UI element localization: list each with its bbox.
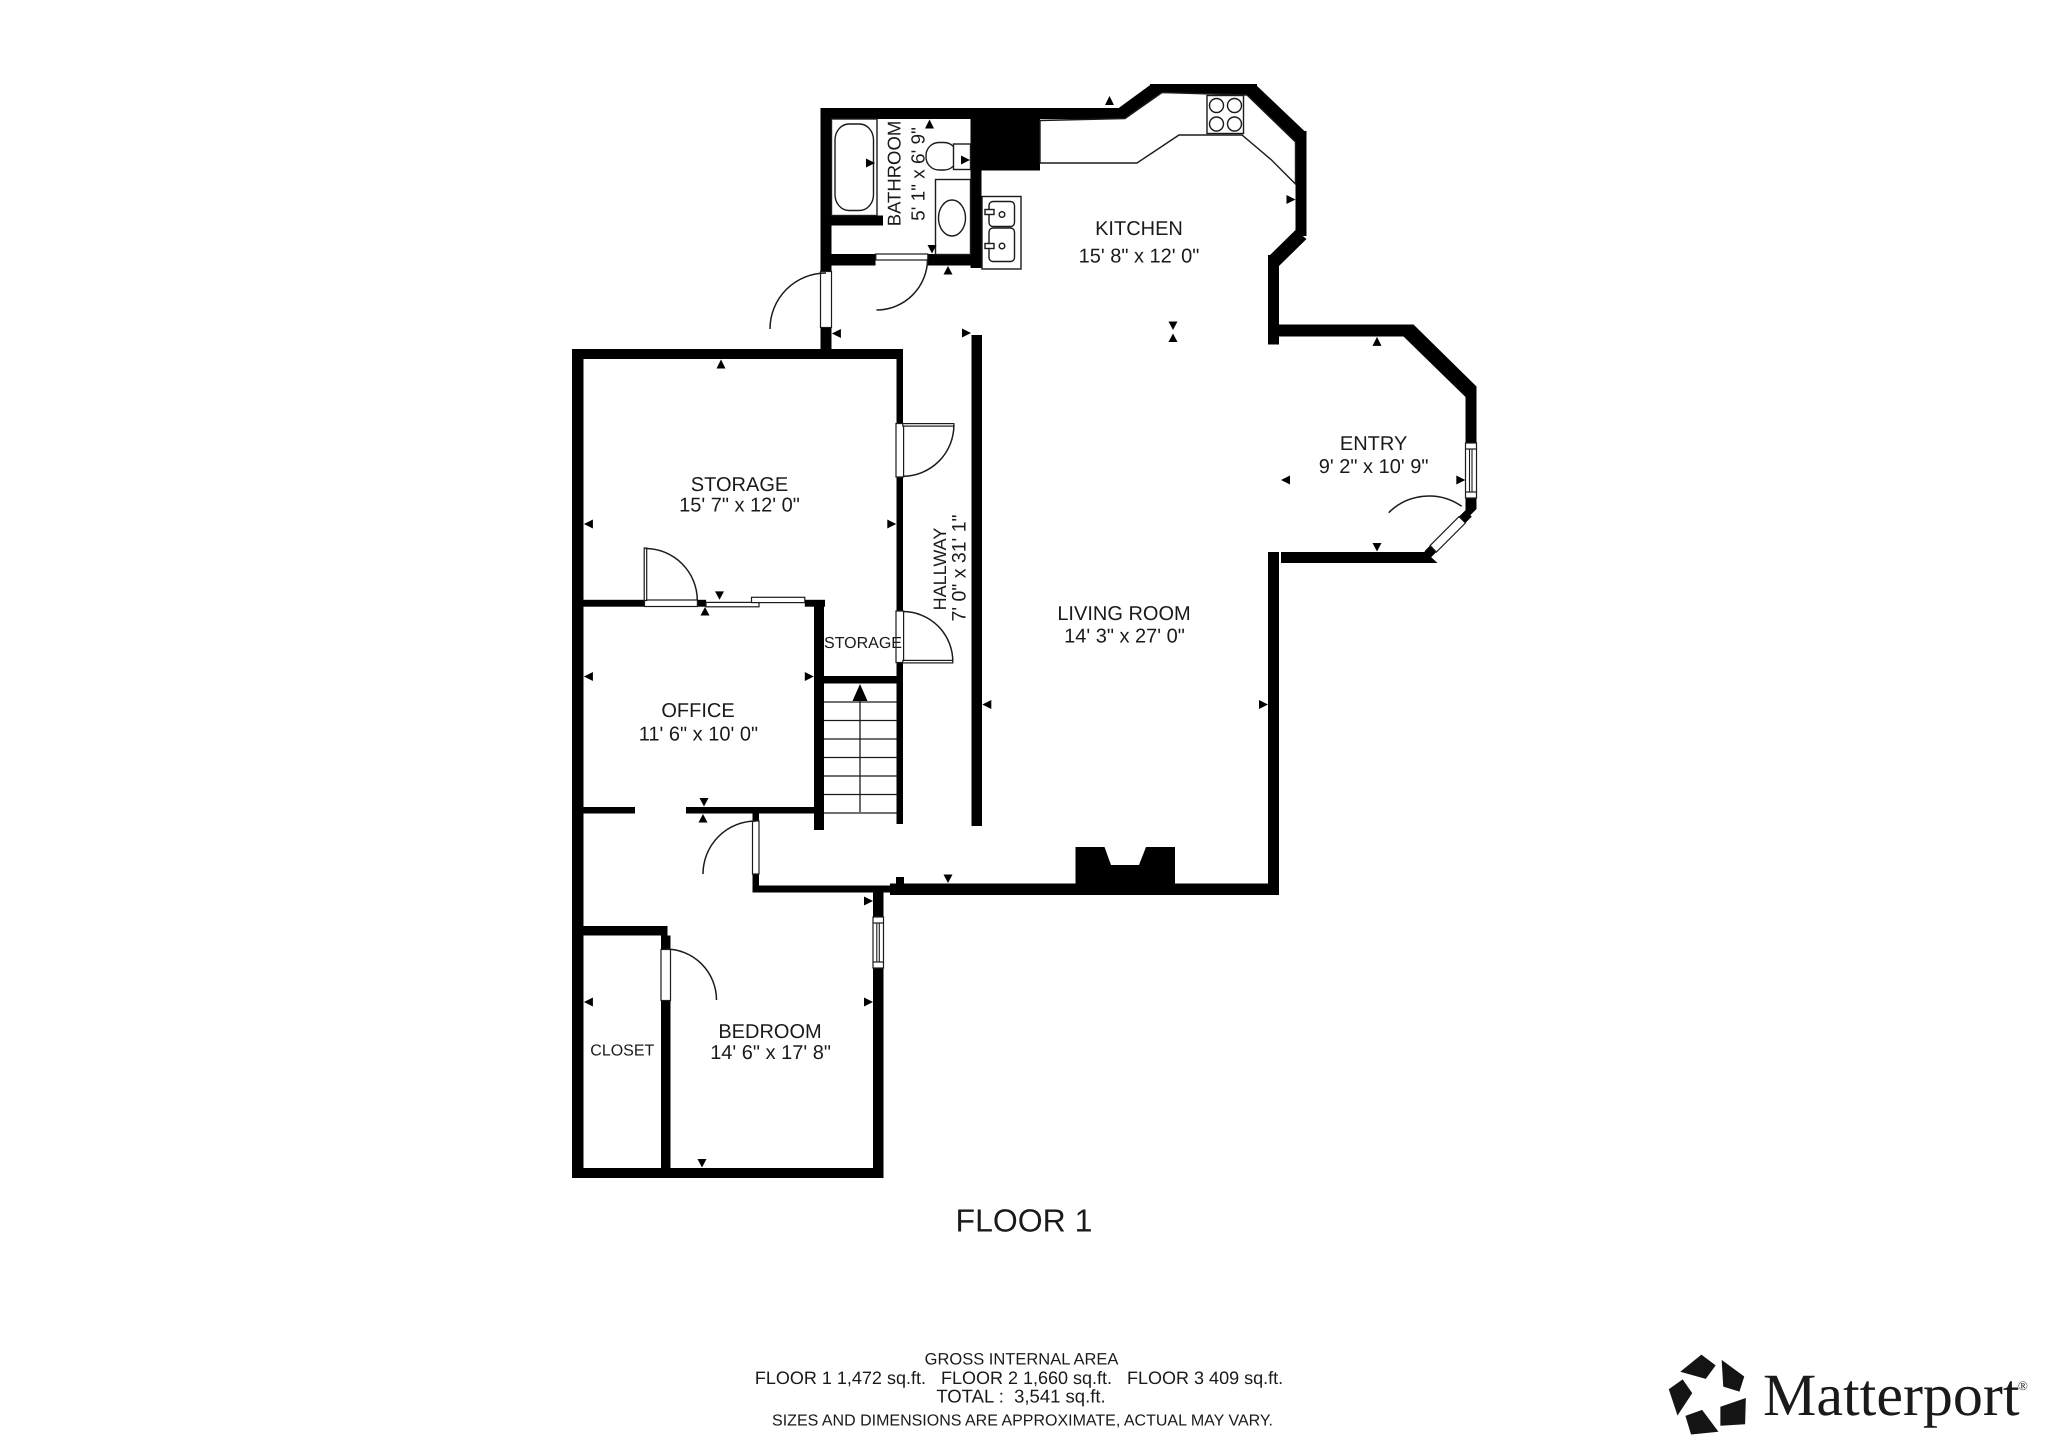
- svg-text:15' 7" x 12' 0": 15' 7" x 12' 0": [679, 495, 800, 517]
- svg-text:14' 6" x 17' 8": 14' 6" x 17' 8": [710, 1042, 831, 1064]
- svg-text:11' 6" x 10' 0": 11' 6" x 10' 0": [639, 724, 758, 746]
- svg-text:CLOSET: CLOSET: [590, 1043, 654, 1060]
- svg-text:TOTAL : 3,541 sq.ft.: TOTAL : 3,541 sq.ft.: [936, 1386, 1105, 1407]
- svg-text:STORAGE: STORAGE: [824, 635, 902, 652]
- svg-text:9' 2" x 10' 9": 9' 2" x 10' 9": [1319, 456, 1429, 478]
- svg-text:®: ®: [2018, 1378, 2028, 1393]
- svg-text:OFFICE: OFFICE: [661, 700, 734, 722]
- svg-text:Matterport: Matterport: [1763, 1362, 2020, 1428]
- svg-text:KITCHEN: KITCHEN: [1095, 218, 1183, 240]
- svg-text:SIZES AND DIMENSIONS ARE APPRO: SIZES AND DIMENSIONS ARE APPROXIMATE, AC…: [772, 1413, 1273, 1430]
- svg-text:FLOOR 1: FLOOR 1: [956, 1203, 1093, 1239]
- svg-text:14' 3" x 27' 0": 14' 3" x 27' 0": [1064, 626, 1185, 648]
- svg-text:5' 1" x 6' 9": 5' 1" x 6' 9": [909, 127, 930, 221]
- svg-text:STORAGE: STORAGE: [691, 474, 788, 496]
- svg-text:15' 8" x 12' 0": 15' 8" x 12' 0": [1079, 246, 1200, 268]
- svg-text:BEDROOM: BEDROOM: [718, 1021, 821, 1043]
- svg-text:LIVING ROOM: LIVING ROOM: [1057, 603, 1190, 625]
- svg-text:ENTRY: ENTRY: [1340, 433, 1407, 455]
- svg-text:BATHROOM: BATHROOM: [884, 121, 905, 227]
- svg-text:GROSS INTERNAL AREA: GROSS INTERNAL AREA: [925, 1351, 1119, 1369]
- svg-text:7' 0" x 31' 1": 7' 0" x 31' 1": [949, 514, 971, 621]
- svg-text:HALLWAY: HALLWAY: [930, 528, 950, 611]
